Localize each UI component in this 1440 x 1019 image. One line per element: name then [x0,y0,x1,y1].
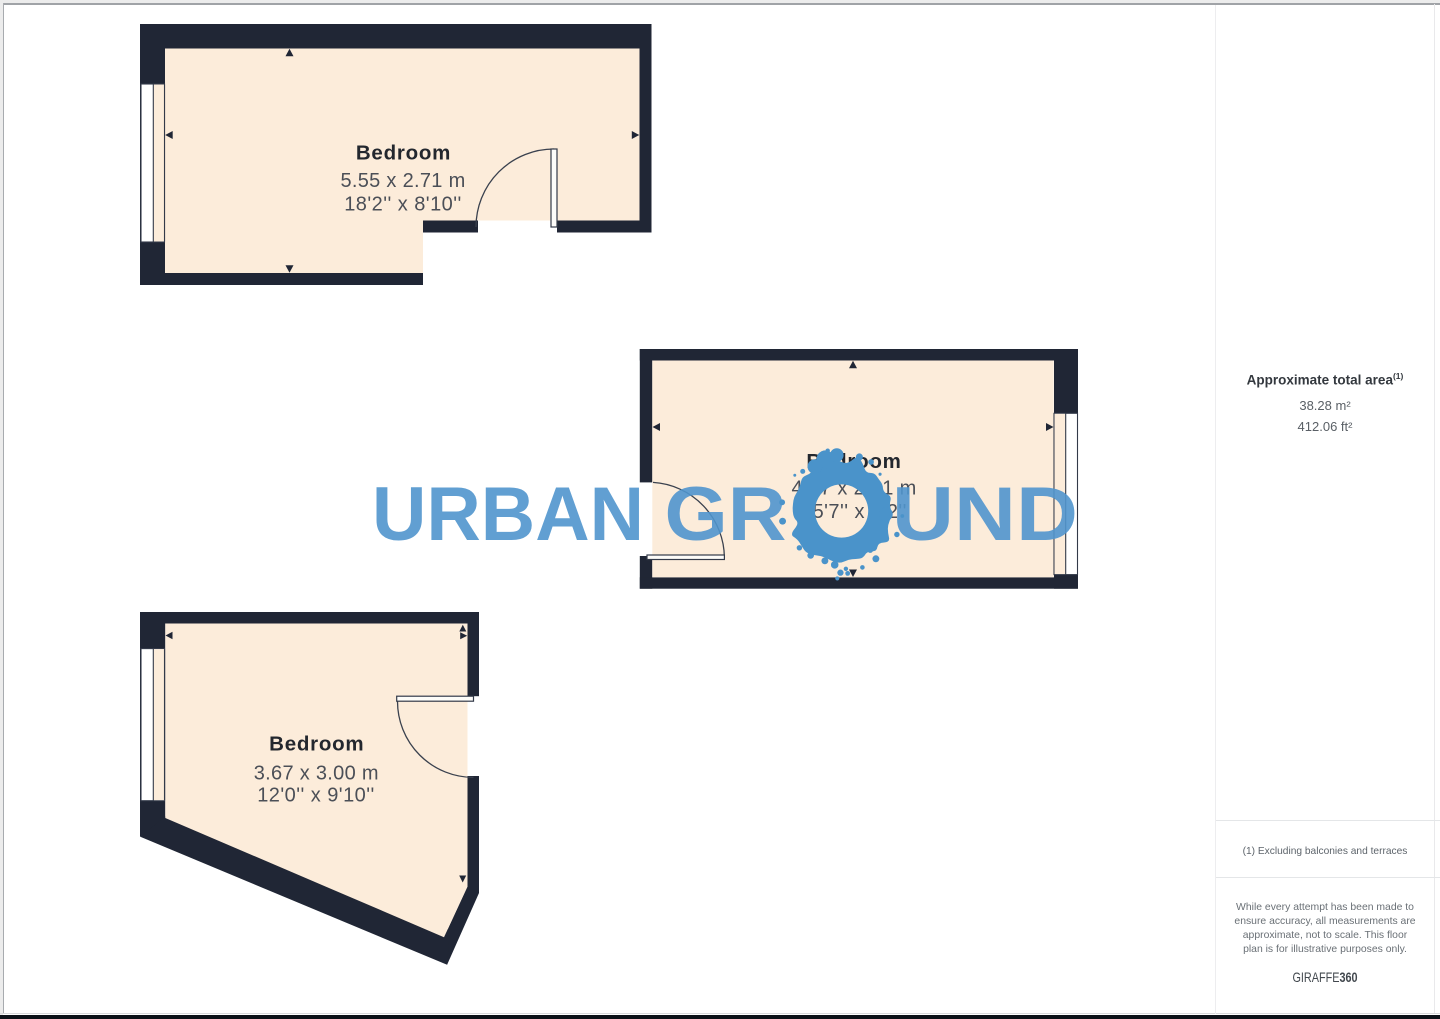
svg-text:Bedroom: Bedroom [269,733,364,756]
svg-text:UND: UND [892,472,1078,557]
svg-text:18'2'' x 8'10'': 18'2'' x 8'10'' [344,194,462,216]
svg-text:5.55 x 2.71 m: 5.55 x 2.71 m [340,170,465,192]
svg-text:GR: GR [665,472,787,557]
svg-text:URBAN: URBAN [372,472,644,557]
svg-text:Bedroom: Bedroom [356,142,451,165]
svg-text:3.67 x 3.00 m: 3.67 x 3.00 m [254,762,379,784]
svg-text:12'0'' x 9'10'': 12'0'' x 9'10'' [257,784,375,806]
